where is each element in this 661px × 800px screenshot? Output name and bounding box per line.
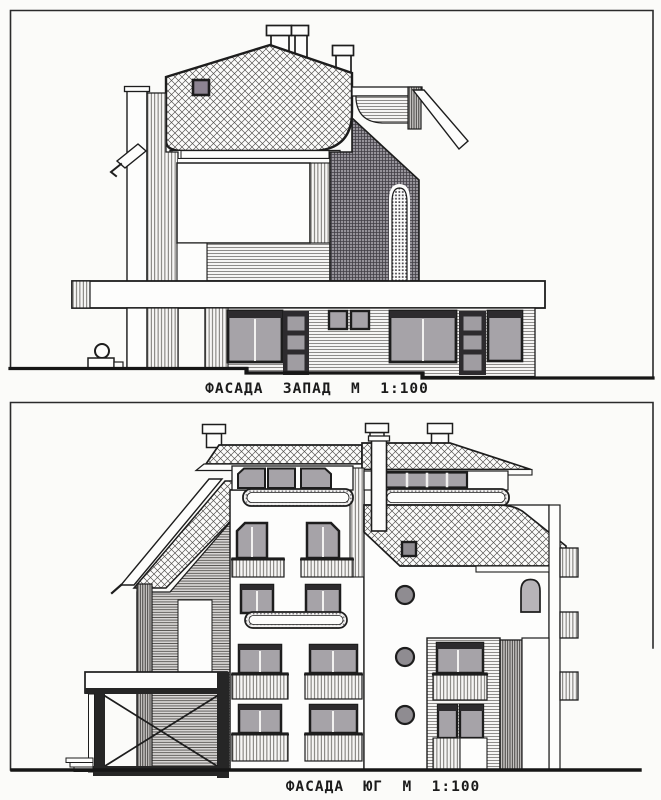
south-penthouse-windows xyxy=(238,469,331,489)
south-right-edge-column xyxy=(549,505,560,770)
west-window-1 xyxy=(228,311,282,362)
south-side-balcony-1 xyxy=(560,548,578,577)
south-facade-caption: ФАСАДА ЮГ М 1:100 xyxy=(217,779,549,795)
west-window-3 xyxy=(488,311,522,361)
west-small-window-b xyxy=(351,311,369,329)
balcony-row2 xyxy=(245,612,347,628)
south-right-balcony xyxy=(383,489,509,506)
south-lrb-door xyxy=(438,705,457,738)
west-floor-slab xyxy=(72,281,545,308)
west-roof xyxy=(166,45,352,151)
west-white-panel-small xyxy=(177,243,207,281)
west-cove-box xyxy=(356,96,410,123)
south-lrb-base-white xyxy=(460,738,487,770)
south-striped-pilaster xyxy=(500,640,522,770)
south-lrb-railing xyxy=(433,673,487,700)
south-lrb-base-striped xyxy=(433,738,460,770)
gutter-spout xyxy=(111,164,121,176)
west-elevation-drawing xyxy=(10,11,653,379)
west-small-window-a xyxy=(329,311,347,329)
south-flue-pipe xyxy=(369,436,390,531)
west-siding-band xyxy=(207,243,330,281)
west-pilaster-lower xyxy=(147,308,178,368)
west-bollard xyxy=(88,344,123,368)
west-roof-fascia xyxy=(170,151,340,159)
west-striped-panel xyxy=(205,308,228,368)
south-side-balcony-3 xyxy=(560,672,578,700)
west-striped-column xyxy=(310,163,330,243)
west-roof-vent xyxy=(193,80,209,95)
south-lrb-window-row2 xyxy=(460,705,483,738)
west-window-2 xyxy=(390,311,456,362)
south-upper-roof-left xyxy=(206,445,362,464)
eave-gutter-tick xyxy=(112,585,121,593)
west-arched-window xyxy=(392,188,407,281)
south-right-window-strip xyxy=(385,473,467,488)
south-penthouse-balcony xyxy=(243,489,353,506)
west-door-2 xyxy=(459,311,486,375)
west-facade-caption: ФАСАДА ЗАПАД М 1:100 xyxy=(151,381,483,397)
south-arched-window xyxy=(521,580,540,613)
column-cap xyxy=(125,87,150,92)
south-white-tower xyxy=(522,638,549,770)
drawing-sheet: ФАСАДА ЗАПАД М 1:100 ФАСАДА ЮГ М 1:100 xyxy=(0,0,661,800)
west-door-1 xyxy=(283,311,309,375)
elevations-svg xyxy=(0,0,661,800)
west-left-column-lower xyxy=(127,308,147,368)
slab-end-block xyxy=(72,281,90,308)
south-side-balcony-2 xyxy=(560,612,578,638)
south-upper-roof-right xyxy=(362,443,531,470)
south-elevation-drawing xyxy=(11,403,654,779)
south-lrb-window-row1 xyxy=(437,643,483,673)
south-roof-vent xyxy=(402,542,416,556)
west-white-panel-large xyxy=(177,163,310,243)
